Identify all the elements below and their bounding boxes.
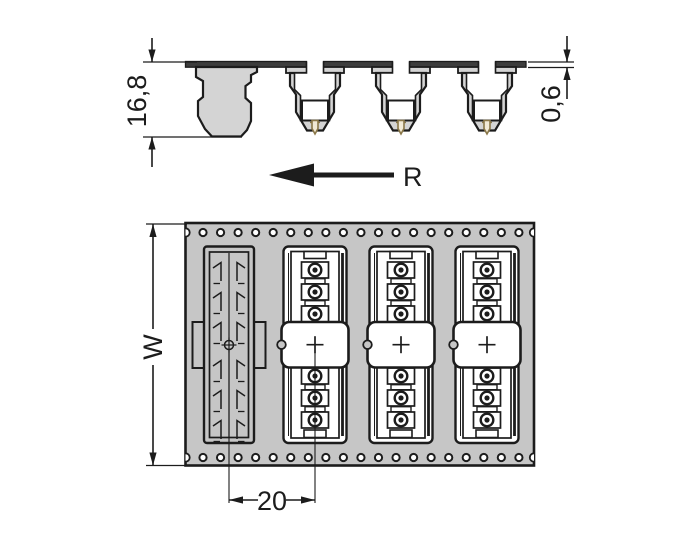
left-ear [193, 322, 205, 368]
right-ear [254, 322, 266, 368]
arrowhead-up [563, 68, 570, 81]
height-dim-label: 16,8 [122, 75, 152, 128]
pitch-dim-label: 20 [257, 486, 287, 516]
direction-label: R [403, 162, 423, 192]
feed-direction-arrow: R [269, 162, 423, 192]
arrowhead-left [229, 496, 243, 503]
arrowhead-left [269, 164, 314, 187]
dim-thickness-0-6: 0,6 [528, 36, 574, 123]
arrowhead-down [563, 50, 570, 63]
side-view: 16,8 0,6 R [122, 36, 574, 192]
arrowhead-right [301, 496, 315, 503]
dim-tape-width-w: W [138, 224, 187, 466]
plan-view: W 20 [138, 223, 538, 516]
empty-pocket-side [196, 67, 257, 137]
tape-width-dim-label: W [138, 334, 168, 360]
arrowhead-up [148, 137, 155, 150]
loaded-pockets-side [286, 62, 516, 135]
arrowhead-down [149, 453, 156, 466]
thickness-dim-label: 0,6 [536, 85, 566, 123]
arrowhead-up [149, 224, 156, 237]
arrowhead-down [148, 50, 155, 63]
connector-cells [277, 247, 520, 444]
technical-drawing: 16,8 0,6 R [0, 0, 697, 543]
